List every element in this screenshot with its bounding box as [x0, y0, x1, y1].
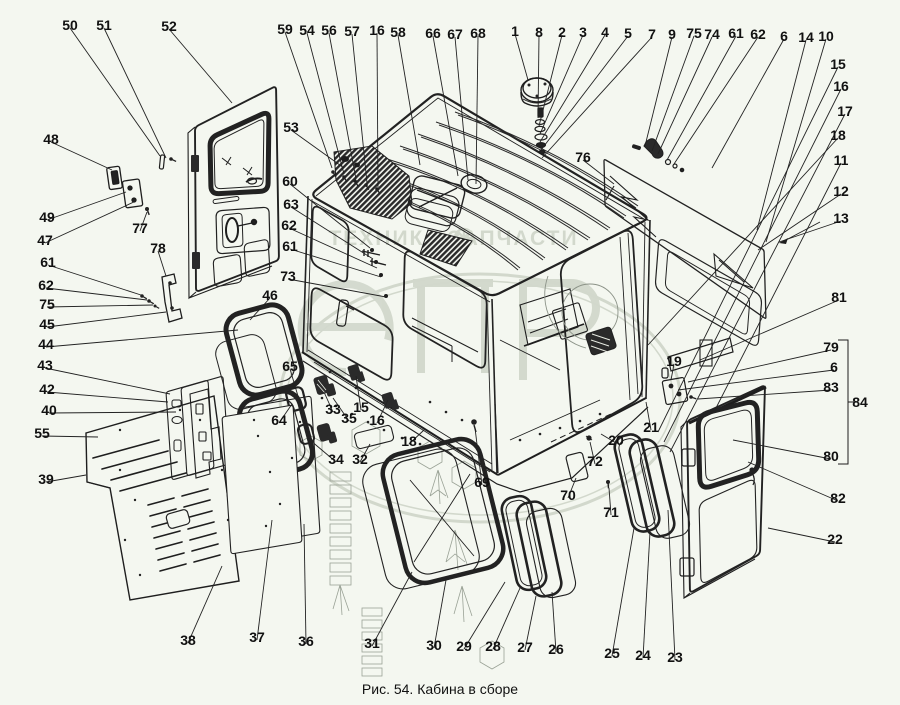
svg-text:37: 37	[249, 629, 265, 645]
svg-text:34: 34	[328, 451, 344, 467]
svg-text:57: 57	[344, 23, 360, 39]
svg-text:36: 36	[298, 633, 314, 649]
svg-text:53: 53	[283, 119, 299, 135]
svg-text:22: 22	[827, 531, 843, 547]
svg-text:66: 66	[425, 25, 441, 41]
svg-text:18: 18	[830, 127, 846, 143]
svg-text:62: 62	[750, 26, 766, 42]
svg-text:62: 62	[38, 277, 54, 293]
svg-text:26: 26	[548, 641, 564, 657]
svg-text:79: 79	[823, 339, 839, 355]
svg-text:69: 69	[474, 474, 490, 490]
svg-text:61: 61	[40, 254, 56, 270]
svg-text:50: 50	[62, 17, 78, 33]
svg-text:56: 56	[321, 22, 337, 38]
svg-text:Рис. 54. Кабина в сборе: Рис. 54. Кабина в сборе	[362, 681, 518, 697]
svg-text:65: 65	[282, 358, 298, 374]
svg-text:75: 75	[686, 25, 702, 41]
svg-text:28: 28	[485, 638, 501, 654]
svg-text:58: 58	[390, 24, 406, 40]
svg-text:6: 6	[780, 28, 788, 44]
svg-text:48: 48	[43, 131, 59, 147]
svg-text:76: 76	[575, 149, 591, 165]
svg-text:60: 60	[282, 173, 298, 189]
svg-text:64: 64	[271, 412, 287, 428]
svg-text:49: 49	[39, 209, 55, 225]
svg-text:59: 59	[277, 21, 293, 37]
svg-text:29: 29	[456, 638, 472, 654]
svg-text:15: 15	[830, 56, 846, 72]
svg-text:20: 20	[608, 432, 624, 448]
svg-text:84: 84	[852, 394, 868, 410]
svg-text:46: 46	[262, 287, 278, 303]
svg-text:62: 62	[281, 217, 297, 233]
svg-text:55: 55	[34, 425, 50, 441]
svg-text:24: 24	[635, 647, 651, 663]
svg-text:23: 23	[667, 649, 683, 665]
svg-text:8: 8	[535, 24, 543, 40]
svg-text:52: 52	[161, 18, 177, 34]
svg-text:9: 9	[668, 26, 676, 42]
svg-text:3: 3	[579, 24, 587, 40]
svg-text:30: 30	[426, 637, 442, 653]
svg-text:54: 54	[299, 22, 315, 38]
svg-text:82: 82	[830, 490, 846, 506]
svg-text:15: 15	[353, 399, 369, 415]
svg-text:77: 77	[132, 220, 148, 236]
svg-text:16: 16	[369, 412, 385, 428]
svg-text:47: 47	[37, 232, 53, 248]
svg-text:42: 42	[39, 381, 55, 397]
svg-text:73: 73	[280, 268, 296, 284]
svg-text:12: 12	[833, 183, 849, 199]
svg-text:45: 45	[39, 316, 55, 332]
svg-text:72: 72	[587, 453, 603, 469]
svg-text:16: 16	[833, 78, 849, 94]
svg-text:75: 75	[39, 296, 55, 312]
svg-text:38: 38	[180, 632, 196, 648]
svg-text:68: 68	[470, 25, 486, 41]
svg-text:40: 40	[41, 402, 57, 418]
svg-text:67: 67	[447, 26, 463, 42]
svg-text:14: 14	[798, 29, 814, 45]
svg-text:83: 83	[823, 379, 839, 395]
svg-text:27: 27	[517, 639, 533, 655]
svg-text:25: 25	[604, 645, 620, 661]
svg-text:44: 44	[38, 336, 54, 352]
svg-text:74: 74	[704, 26, 720, 42]
svg-text:32: 32	[352, 451, 368, 467]
svg-text:78: 78	[150, 240, 166, 256]
svg-text:10: 10	[818, 28, 834, 44]
svg-text:70: 70	[560, 487, 576, 503]
svg-text:61: 61	[282, 238, 298, 254]
svg-text:2: 2	[558, 24, 566, 40]
svg-text:16: 16	[369, 22, 385, 38]
svg-text:19: 19	[666, 353, 682, 369]
svg-text:31: 31	[364, 635, 380, 651]
svg-text:4: 4	[601, 24, 609, 40]
svg-text:71: 71	[603, 504, 619, 520]
svg-text:5: 5	[624, 25, 632, 41]
svg-text:17: 17	[837, 103, 853, 119]
svg-text:13: 13	[833, 210, 849, 226]
svg-text:81: 81	[831, 289, 847, 305]
svg-text:11: 11	[834, 152, 849, 168]
svg-text:1: 1	[511, 23, 519, 39]
svg-text:61: 61	[728, 25, 744, 41]
svg-text:7: 7	[648, 26, 656, 42]
svg-text:18: 18	[401, 433, 417, 449]
svg-text:80: 80	[823, 448, 839, 464]
svg-text:43: 43	[37, 357, 53, 373]
svg-text:21: 21	[643, 419, 659, 435]
svg-text:39: 39	[38, 471, 54, 487]
svg-text:33: 33	[325, 401, 341, 417]
svg-text:6: 6	[830, 359, 838, 375]
svg-text:51: 51	[96, 17, 112, 33]
svg-text:63: 63	[283, 196, 299, 212]
